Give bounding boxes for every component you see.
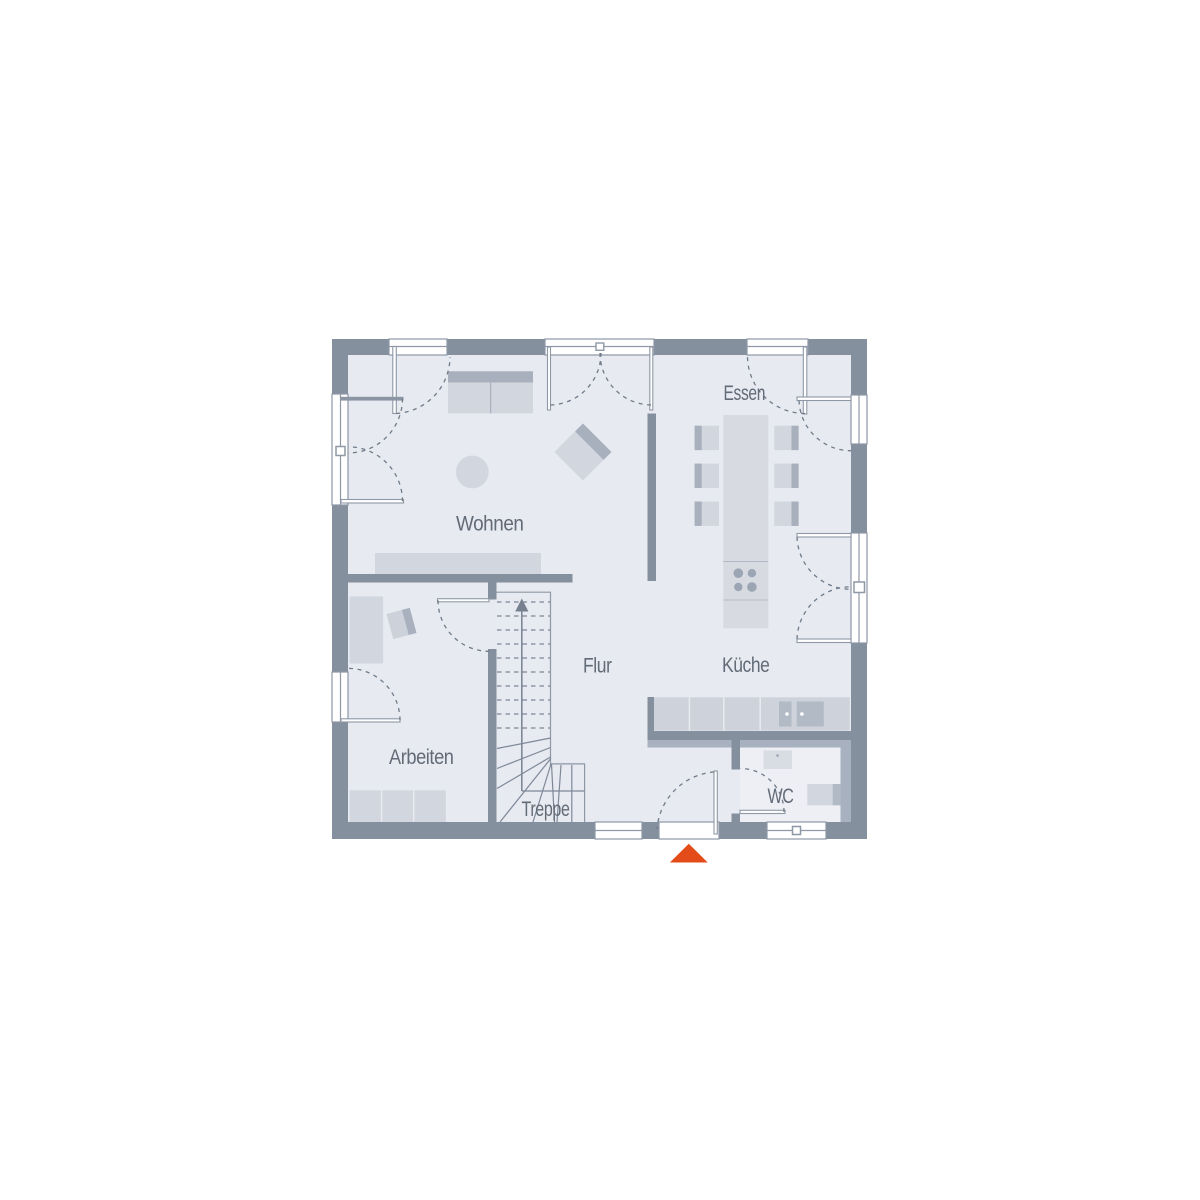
svg-text:Küche: Küche [722,653,770,677]
svg-text:Flur: Flur [583,653,612,677]
svg-text:WC: WC [768,784,794,808]
svg-text:Arbeiten: Arbeiten [389,745,454,769]
svg-text:Treppe: Treppe [522,797,570,821]
svg-text:Essen: Essen [724,381,766,405]
svg-text:Wohnen: Wohnen [456,512,524,536]
